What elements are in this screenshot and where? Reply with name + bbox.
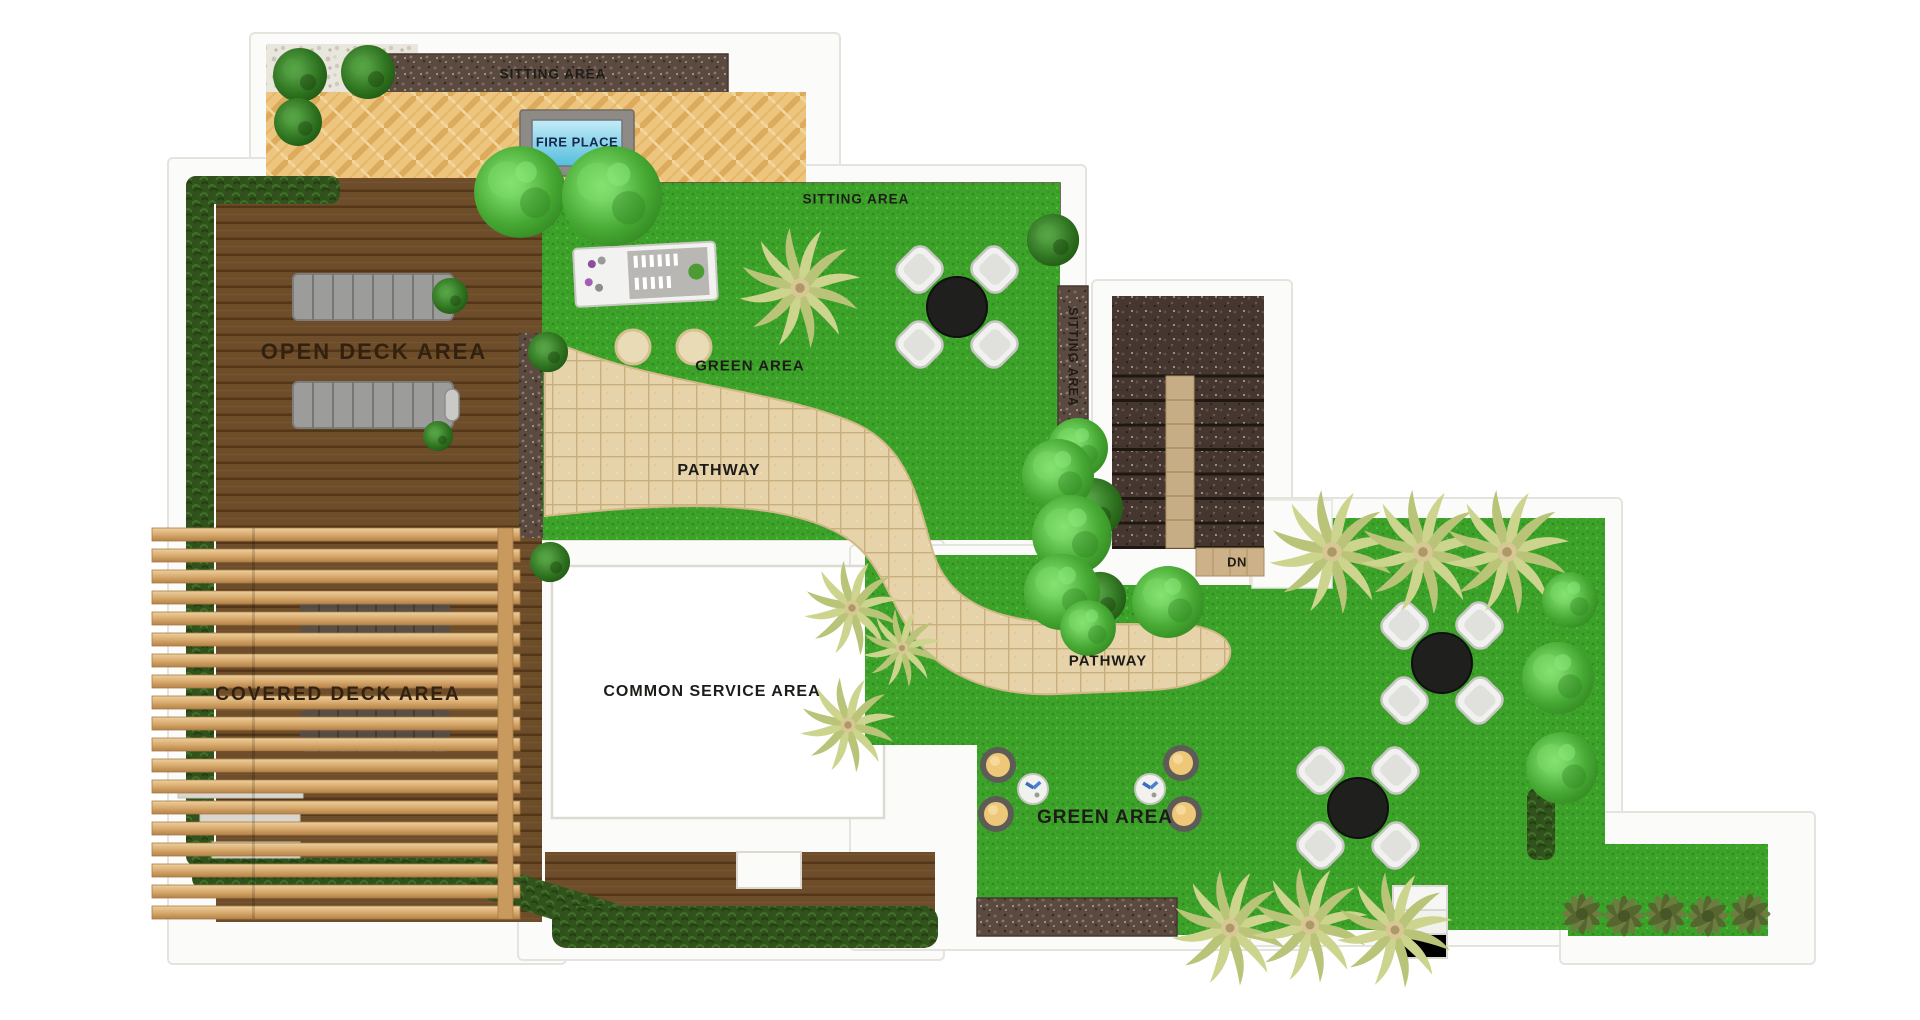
bush [273,48,327,102]
label-sitting-area-side: SITTING AREA [1066,307,1080,407]
label-green-area-top: GREEN AREA [695,358,804,375]
round-tree [1522,642,1594,714]
staircase [1112,296,1264,576]
wall-notch [737,852,801,888]
label-open-deck-area: OPEN DECK AREA [261,339,487,365]
round-tree [1132,566,1204,638]
ottoman-seat [980,747,1016,783]
round-tree [474,146,566,238]
round-tree [1060,600,1116,656]
bar-stool [616,330,650,364]
pergola-beam [498,528,513,919]
side-table [1135,774,1165,804]
stair-divider [1166,376,1194,548]
sun-lounger [293,382,459,428]
bush [423,421,453,451]
label-stairs-dn: DN [1227,555,1247,570]
ottoman-seat [1163,745,1199,781]
ottoman-seat [978,796,1014,832]
bush [274,98,322,146]
rooftop-floor-plan: SITTING AREA FIRE PLACE SITTING AREA SIT… [0,0,1920,1020]
bush [432,278,468,314]
side-table [1018,774,1048,804]
label-pathway-upper: PATHWAY [677,462,760,480]
label-pathway-lower: PATHWAY [1069,653,1147,670]
label-sitting-area-mid: SITTING AREA [803,192,910,207]
label-green-area-bottom: GREEN AREA [1037,807,1173,829]
bush [528,332,568,372]
floor-plan-graphics [0,0,1920,1020]
label-sitting-area-top: SITTING AREA [500,67,607,82]
round-tree [562,146,662,246]
bush [530,542,570,582]
bush [1027,214,1079,266]
label-common-service-area: COMMON SERVICE AREA [603,683,820,701]
sitting-strip-bottom [977,898,1177,936]
label-fire-place: FIRE PLACE [536,135,618,150]
round-tree [1542,572,1598,628]
bush [341,45,395,99]
bar-counter [573,242,718,307]
round-tree [1526,732,1598,804]
label-covered-deck-area: COVERED DECK AREA [215,684,461,706]
